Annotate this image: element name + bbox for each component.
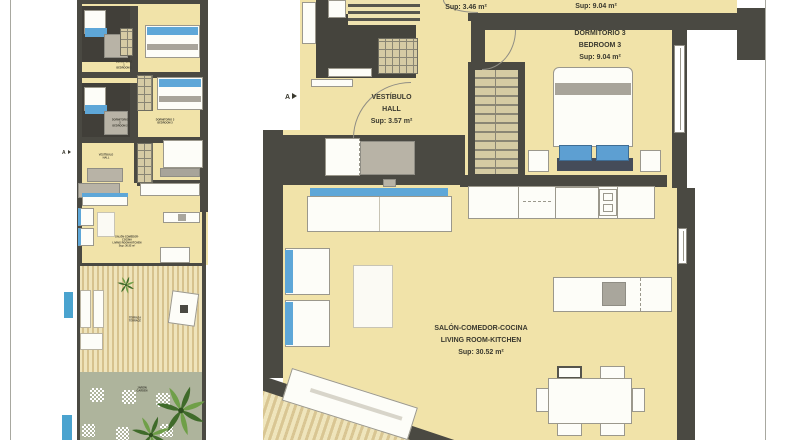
armchair-side [285,250,293,293]
entrance-door-leaf [311,79,353,87]
mini-counter [87,168,123,182]
mini-label-terrace: TERRAZA TERRACE [127,317,144,323]
mini-section-marker-letter: A [62,150,66,156]
mini-bed-pillows [147,27,198,35]
hall-label-sup: Sup: 3.57 m² [355,116,428,128]
shower-tray [328,0,346,18]
dining-table [548,378,632,424]
mini-label-hall: VESTÍBULO HALL [98,154,115,160]
section-marker: A [285,93,297,101]
mini-kitchen-row [140,183,200,196]
kitchen-sink-basin [603,204,613,212]
mini-lounger [93,290,104,328]
main-plan: A Sup: 3.46 m² [263,0,773,440]
bathroom-door [302,2,316,44]
mini-terrace-divider [77,263,206,266]
dining-chair [600,423,625,436]
mini-label-bedroom3: DORMITORIO 3 BEDROOM 3 [156,119,174,125]
mini-bed-bench [160,168,200,177]
stove [555,187,599,219]
closet-tab [383,179,396,187]
bed [553,67,633,147]
sheet-border-right [765,0,766,440]
mini-terrace-table-center [180,305,188,313]
mini-closet [137,143,153,183]
kitchen-counter-dashes [523,201,551,202]
mini-closet [120,28,133,56]
floor-plan-sheet: { "main_plan": { "section_marker": "A", … [0,0,790,440]
section-arrow-icon [292,93,297,99]
mini-lounger [80,290,91,328]
mini-plan: DORMITORIO 1 BEDROOM 1 DORMITORIO 2 BEDR… [60,0,215,440]
bathroom-bench [328,68,372,77]
mini-lounger [80,333,103,350]
wardrobe-interior [475,70,518,174]
kitchen-cabinet-divider [518,187,519,218]
mini-bed-band [159,96,201,102]
mini-bed-pillows [159,79,201,87]
mini-dining-table [160,247,190,263]
sheet-border-left [10,0,11,440]
corner-wall-chunk [737,8,765,60]
mini-bed-band [147,44,198,50]
living-label-sup: Sup: 30.52 m² [391,347,571,359]
mini-garden-paver [82,424,95,437]
bed-blanket-band [555,83,631,95]
bathroom-striped-area [348,0,420,25]
mini-island-sink [178,214,186,221]
living-label-en: LIVING ROOM-KITCHEN [391,335,571,347]
bed-cushion [596,145,629,161]
hall-label-es: VESTÍBULO [355,92,428,104]
hall-label: VESTÍBULO HALL Sup: 3.57 m² [355,92,428,128]
mini-garden-paver [90,388,104,402]
mini-armchair [78,208,94,226]
section-marker-letter: A [285,94,290,101]
mini-label-living: SALÓN-COMEDOR-COCINA LIVING ROOM-KITCHEN… [112,236,141,248]
section-arrow-icon [68,150,71,154]
wall-closet-white [325,138,360,176]
mini-label-bedroom1: DORMITORIO 1 BEDROOM 1 [116,61,133,70]
palm-tree-icon [117,276,135,294]
right-wall-lower [677,188,695,440]
island-dashed-section [640,278,672,311]
mini-section-marker: A [62,150,71,156]
bedroom3-label-sup: Sup: 9.04 m² [540,52,660,64]
mini-armchair [78,228,94,246]
sofa-cushion-divider [379,197,380,231]
bed-cushion [559,145,592,161]
living-window [678,228,687,264]
mini-label-garden: JARDÍN GARDEN [134,387,151,393]
living-label-es: SALÓN-COMEDOR-COCINA [391,323,571,335]
mini-coffee-table [97,212,115,237]
mini-garden-paver [116,427,129,440]
bedroom2-area-label: Sup: 9.04 m² [546,1,646,12]
bathroom-block-top [316,0,328,18]
mini-pool [62,415,72,440]
bedroom-window [674,45,685,133]
coffee-table [353,265,393,328]
mini-closet [137,75,153,111]
dining-chair [632,388,645,412]
kitchen-cabinet-divider [617,187,618,218]
palm-tree-icon [130,415,172,440]
bedroom3-label-en: BEDROOM 3 [540,40,660,52]
mini-wall [77,0,208,4]
hall-shelving [378,38,418,74]
bedroom3-label-es: DORMITORIO 3 [540,28,660,40]
armchair-side [285,302,293,345]
hall-label-en: HALL [355,104,428,116]
mini-pool [64,292,73,318]
dining-chair [557,423,582,436]
bath-area-label: Sup: 3.46 m² [416,2,516,13]
island-sink [602,282,626,306]
nightstand [528,150,549,172]
mini-label-bedroom2: DORMITORIO 2 BEDROOM 2 [112,119,129,128]
nightstand [640,150,661,172]
mini-sofa-back [82,193,128,197]
mini-bed-3 [163,140,203,168]
wall-closet-gray [360,141,415,175]
bedroom3-label: DORMITORIO 3 BEDROOM 3 Sup: 9.04 m² [540,28,660,64]
living-room-label: SALÓN-COMEDOR-COCINA LIVING ROOM-KITCHEN… [391,323,571,359]
kitchen-sink-basin [603,193,613,201]
